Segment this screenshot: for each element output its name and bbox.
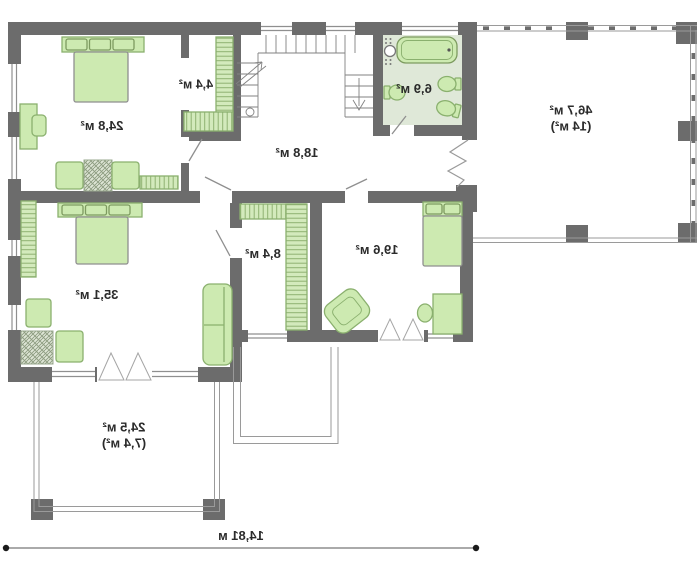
side-terrace-edges (473, 25, 697, 243)
terrace-post (566, 225, 588, 243)
floor-plan-canvas: 24,8 м² 4,4 м² 18,8 м² 6,9 м² 46,7 м² (1… (0, 0, 700, 575)
armchair (112, 162, 139, 189)
door-walk-in-closet (216, 230, 230, 256)
bed (423, 202, 462, 266)
door-bedroom-bottom-right (346, 179, 367, 189)
rug (84, 160, 112, 191)
desk-chair (418, 304, 433, 322)
armchair (56, 331, 83, 362)
area-label-bedroom-bottom-right: 19,6 м² (356, 242, 399, 258)
armchair (26, 299, 51, 327)
entrance-door-leaf (380, 319, 400, 340)
wardrobe-shelf (21, 201, 36, 277)
area-label-bedroom-middle-left: 35,1 м² (76, 287, 119, 303)
stair-newel (246, 108, 254, 116)
rug (21, 331, 53, 364)
area-label-line2: (14 м²) (550, 118, 593, 134)
dimension-label: 14,81 м (218, 528, 264, 544)
armchair (56, 162, 83, 189)
area-label-front-terrace: 24,5 м² (7,4 м²) (102, 419, 146, 450)
closet-shelf (286, 204, 307, 330)
desk (433, 294, 462, 334)
door-bedroom-middle-left (205, 177, 231, 190)
entrance-porch-outline (234, 347, 339, 444)
desk-chair (32, 115, 46, 136)
area-label-closet: 8,4 м² (245, 246, 281, 262)
armchair (321, 285, 373, 336)
wardrobe-shelf (184, 112, 233, 131)
sofa (203, 284, 232, 365)
terrace-door-leaf (99, 353, 124, 380)
bathtub (397, 37, 457, 63)
area-label-line2: (7,4 м²) (102, 435, 146, 451)
area-label-hall: 18,8 м² (276, 145, 319, 161)
wardrobe-shelf (216, 37, 233, 113)
bed (58, 203, 142, 264)
area-label-bathroom: 6,9 м² (396, 81, 432, 97)
area-label-side-terrace: 46,7 м² (14 м²) (550, 102, 593, 133)
shelf (140, 176, 178, 189)
bidet (438, 77, 461, 92)
terrace-door-leaf (126, 353, 151, 380)
entrance-door-leaf (403, 319, 423, 340)
area-label-line1: 24,5 м² (102, 419, 146, 435)
area-label-bedroom-top-left: 24,8 м² (81, 118, 124, 134)
door-bedroom-top-left (189, 139, 202, 161)
staircase (236, 35, 373, 117)
area-label-wardrobe: 4,4 м² (179, 78, 213, 93)
stair-railing (258, 53, 345, 117)
dimension-line (3, 545, 479, 551)
bed (62, 37, 144, 102)
break-line (448, 140, 468, 187)
area-label-line1: 46,7 м² (550, 102, 593, 118)
